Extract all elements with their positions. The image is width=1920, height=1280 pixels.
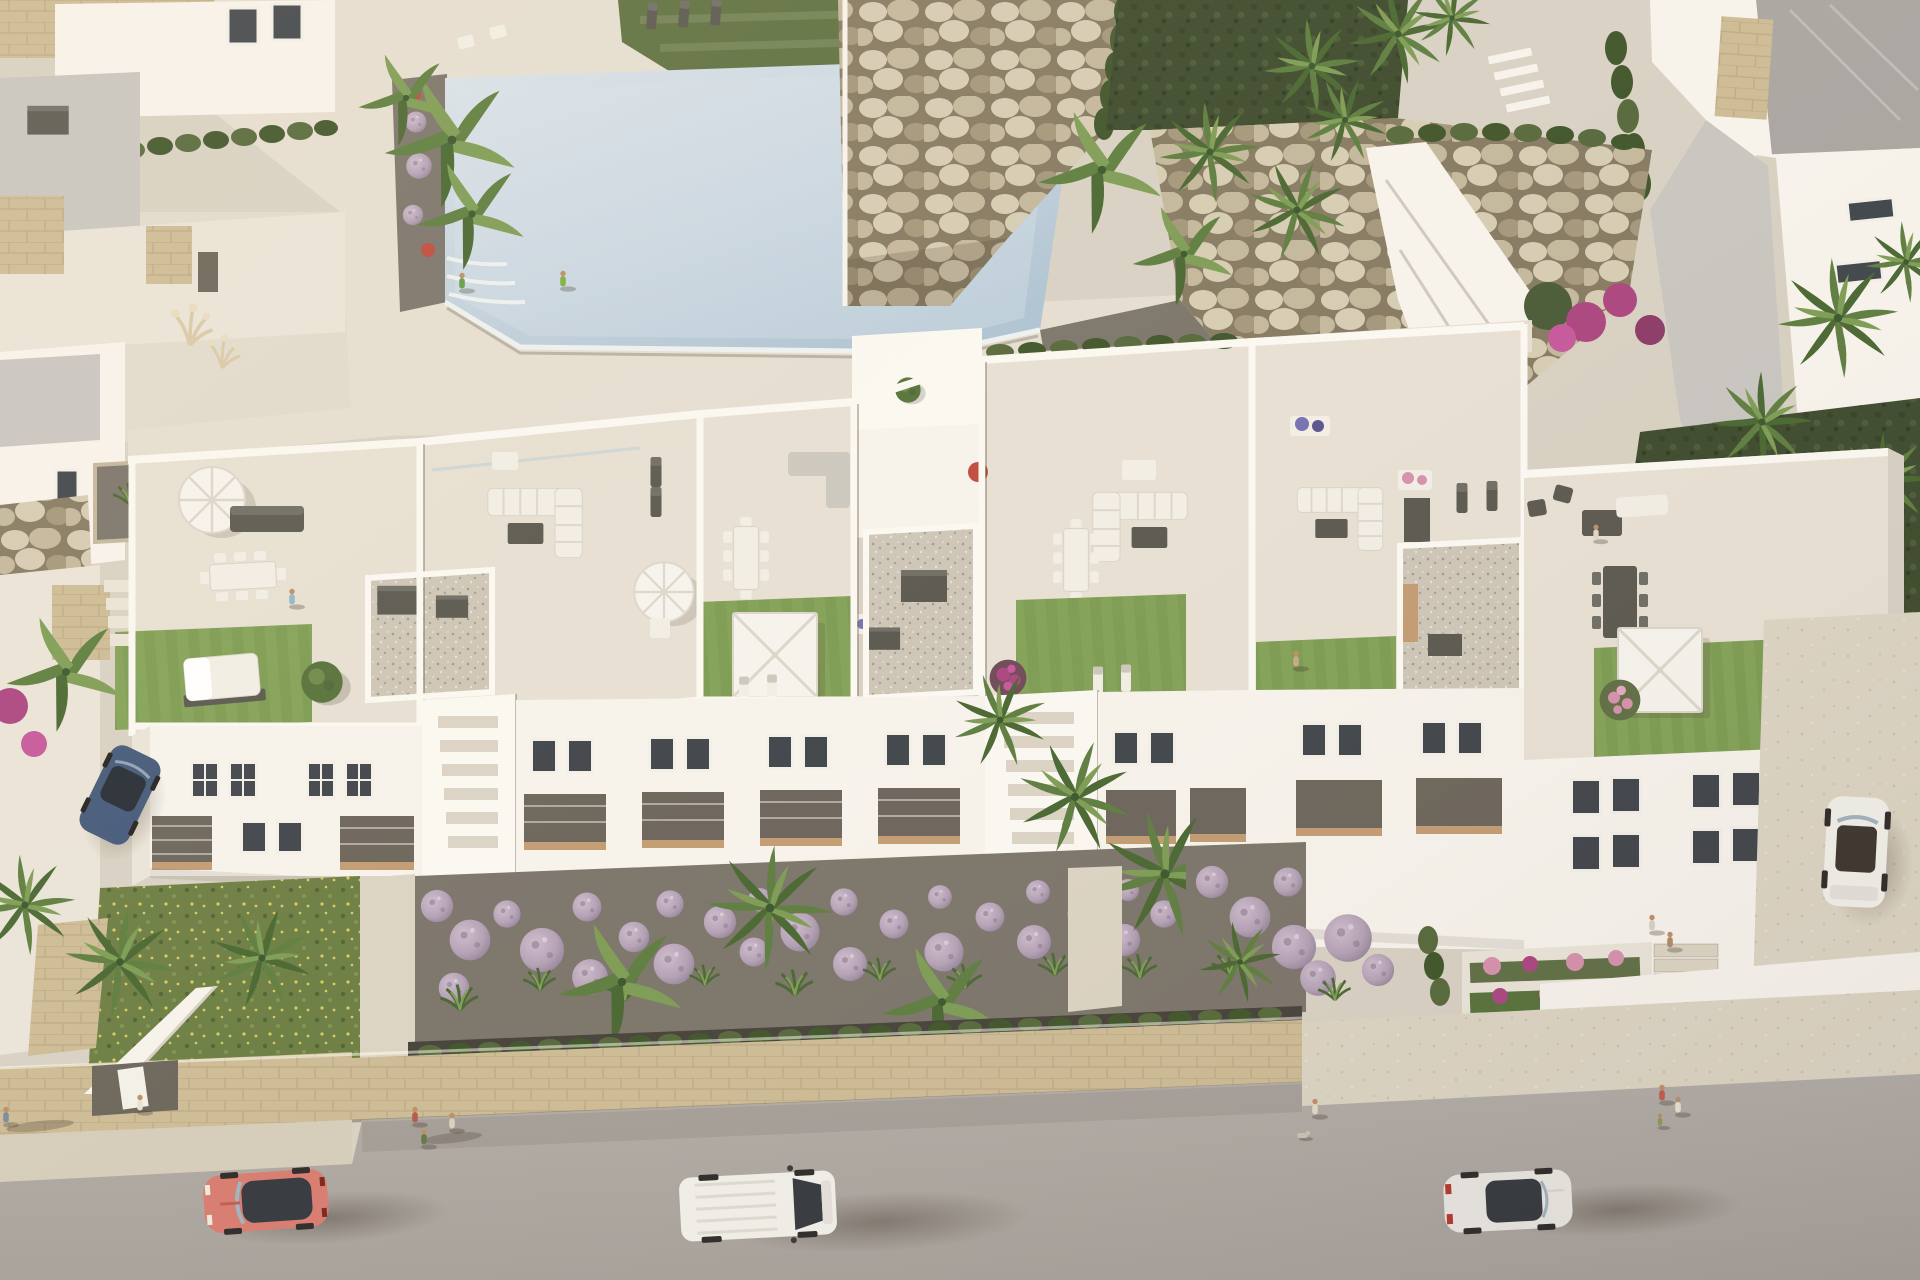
light-overlay: [0, 0, 1920, 1280]
aerial-render: [0, 0, 1920, 1280]
scene-canvas: [0, 0, 1920, 1280]
